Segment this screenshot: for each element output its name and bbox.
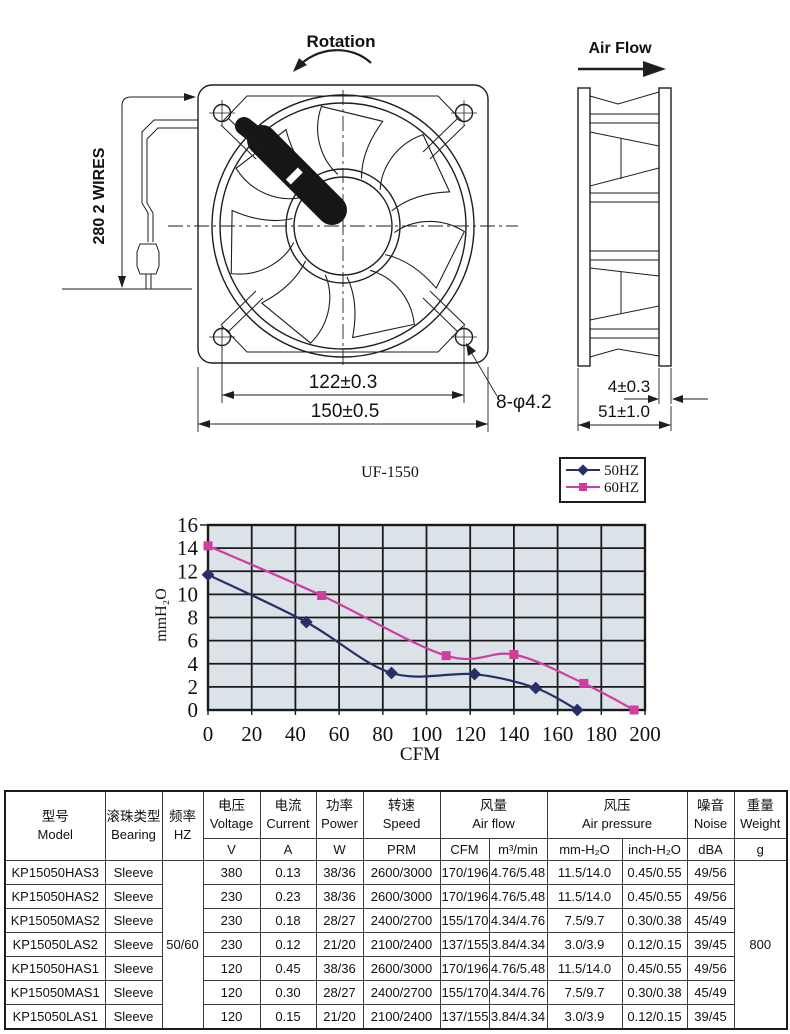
technical-drawing: Rotation Air Flow 280 2 WIRES 122±0.3 15… bbox=[0, 0, 790, 505]
cell-current: 0.45 bbox=[260, 957, 316, 981]
unit-noise: dBA bbox=[687, 839, 734, 861]
dim-holes-label: 8-φ4.2 bbox=[496, 392, 552, 413]
cell-airflow-m3: 3.84/4.34 bbox=[489, 1005, 547, 1030]
cell-speed: 2400/2700 bbox=[363, 981, 440, 1005]
cell-voltage: 380 bbox=[203, 861, 260, 885]
cell-speed: 2100/2400 bbox=[363, 933, 440, 957]
dim-thickness-label: 4±0.3 bbox=[608, 377, 650, 396]
cell-airflow-cfm: 170/196 bbox=[440, 957, 489, 981]
cell-bearing: Sleeve bbox=[105, 909, 162, 933]
dim-frame-label: 150±0.5 bbox=[311, 401, 380, 422]
performance-chart: 0204060801001201401601802000246810121416… bbox=[0, 505, 790, 790]
fan-blade bbox=[381, 206, 465, 290]
series-marker-60HZ bbox=[630, 706, 639, 715]
cell-noise: 45/49 bbox=[687, 909, 734, 933]
cell-airflow-m3: 4.34/4.76 bbox=[489, 909, 547, 933]
header-model-en: Model bbox=[7, 826, 104, 844]
cell-power: 21/20 bbox=[316, 1005, 363, 1030]
header-weight-en: Weight bbox=[736, 815, 786, 833]
unit-weight: g bbox=[734, 839, 787, 861]
cell-airflow-m3: 3.84/4.34 bbox=[489, 933, 547, 957]
y-tick-label: 0 bbox=[188, 698, 199, 722]
cell-current: 0.15 bbox=[260, 1005, 316, 1030]
cell-model: KP15050MAS2 bbox=[5, 909, 105, 933]
cell-noise: 49/56 bbox=[687, 957, 734, 981]
y-tick-label: 12 bbox=[177, 559, 198, 583]
x-tick-label: 180 bbox=[586, 722, 618, 746]
header-noise: 噪音 Noise bbox=[687, 791, 734, 839]
fan-blade bbox=[366, 134, 453, 221]
header-pressure-en: Air pressure bbox=[549, 815, 686, 833]
cell-pressure-inch: 0.45/0.55 bbox=[622, 957, 687, 981]
cell-noise: 49/56 bbox=[687, 885, 734, 909]
cell-bearing: Sleeve bbox=[105, 933, 162, 957]
header-voltage: 电压 Voltage bbox=[203, 791, 260, 839]
y-tick-label: 8 bbox=[188, 606, 199, 630]
cell-airflow-cfm: 137/155 bbox=[440, 933, 489, 957]
cell-current: 0.12 bbox=[260, 933, 316, 957]
spec-row: KP15050HAS2Sleeve2300.2338/362600/300017… bbox=[5, 885, 787, 909]
header-voltage-zh: 电压 bbox=[205, 797, 259, 815]
spec-row: KP15050LAS2Sleeve2300.1221/202100/240013… bbox=[5, 933, 787, 957]
cell-pressure-mm: 11.5/14.0 bbox=[547, 861, 622, 885]
header-airflow-en: Air flow bbox=[442, 815, 546, 833]
unit-voltage: V bbox=[203, 839, 260, 861]
cell-airflow-cfm: 155/170 bbox=[440, 981, 489, 1005]
cell-voltage: 120 bbox=[203, 957, 260, 981]
cell-pressure-mm: 7.5/9.7 bbox=[547, 909, 622, 933]
header-noise-zh: 噪音 bbox=[689, 797, 733, 815]
y-tick-label: 2 bbox=[188, 675, 199, 699]
legend-label-60hz: 60HZ bbox=[604, 480, 639, 496]
cell-power: 38/36 bbox=[316, 957, 363, 981]
cell-current: 0.23 bbox=[260, 885, 316, 909]
header-bearing-en: Bearing bbox=[107, 826, 161, 844]
series-marker-60HZ bbox=[579, 679, 588, 688]
cell-airflow-cfm: 155/170 bbox=[440, 909, 489, 933]
cell-bearing: Sleeve bbox=[105, 861, 162, 885]
cell-pressure-inch: 0.12/0.15 bbox=[622, 933, 687, 957]
cell-power: 21/20 bbox=[316, 933, 363, 957]
spec-row: KP15050MAS2Sleeve2300.1828/272400/270015… bbox=[5, 909, 787, 933]
header-weight-zh: 重量 bbox=[736, 797, 786, 815]
cell-power: 38/36 bbox=[316, 885, 363, 909]
cell-pressure-inch: 0.45/0.55 bbox=[622, 861, 687, 885]
header-power: 功率 Power bbox=[316, 791, 363, 839]
cell-speed: 2600/3000 bbox=[363, 861, 440, 885]
airflow-label: Air Flow bbox=[588, 40, 652, 57]
header-pressure-zh: 风压 bbox=[549, 797, 686, 815]
header-bearing-zh: 滚珠类型 bbox=[107, 808, 161, 826]
unit-speed: PRM bbox=[363, 839, 440, 861]
cell-airflow-m3: 4.76/5.48 bbox=[489, 957, 547, 981]
header-power-en: Power bbox=[318, 815, 362, 833]
fan-datasheet-page: Rotation Air Flow 280 2 WIRES 122±0.3 15… bbox=[0, 0, 790, 1034]
cell-pressure-inch: 0.45/0.55 bbox=[622, 885, 687, 909]
cell-model: KP15050LAS1 bbox=[5, 1005, 105, 1030]
cell-current: 0.30 bbox=[260, 981, 316, 1005]
y-tick-label: 16 bbox=[177, 513, 198, 537]
x-tick-label: 140 bbox=[498, 722, 530, 746]
series-marker-60HZ bbox=[509, 650, 518, 659]
cell-current: 0.13 bbox=[260, 861, 316, 885]
cell-bearing: Sleeve bbox=[105, 885, 162, 909]
cell-power: 38/36 bbox=[316, 861, 363, 885]
unit-current: A bbox=[260, 839, 316, 861]
cell-bearing: Sleeve bbox=[105, 1005, 162, 1030]
unit-airflow-m3: m³/min bbox=[489, 839, 547, 861]
airflow-arrow-icon bbox=[578, 61, 666, 77]
header-frequency-en: HZ bbox=[164, 826, 202, 844]
series-marker-60HZ bbox=[442, 651, 451, 660]
header-bearing: 滚珠类型 Bearing bbox=[105, 791, 162, 861]
x-tick-label: 120 bbox=[454, 722, 486, 746]
cell-power: 28/27 bbox=[316, 981, 363, 1005]
cell-speed: 2600/3000 bbox=[363, 957, 440, 981]
cell-airflow-cfm: 170/196 bbox=[440, 885, 489, 909]
series-marker-60HZ bbox=[317, 591, 326, 600]
x-tick-label: 80 bbox=[372, 722, 393, 746]
header-model-zh: 型号 bbox=[7, 808, 104, 826]
header-speed-en: Speed bbox=[365, 815, 439, 833]
y-axis-label: mmH₂O bbox=[153, 588, 170, 642]
cell-speed: 2600/3000 bbox=[363, 885, 440, 909]
cell-weight: 800 bbox=[734, 861, 787, 1030]
spec-row: KP15050HAS1Sleeve1200.4538/362600/300017… bbox=[5, 957, 787, 981]
unit-pressure-inch: inch-H₂O bbox=[622, 839, 687, 861]
spec-row: KP15050MAS1Sleeve1200.3028/272400/270015… bbox=[5, 981, 787, 1005]
header-frequency-zh: 频率 bbox=[164, 808, 202, 826]
spec-row: KP15050HAS3Sleeve50/603800.1338/362600/3… bbox=[5, 861, 787, 885]
header-current: 电流 Current bbox=[260, 791, 316, 839]
cell-pressure-mm: 3.0/3.9 bbox=[547, 1005, 622, 1030]
unit-pressure-mm: mm-H₂O bbox=[547, 839, 622, 861]
cell-model: KP15050HAS1 bbox=[5, 957, 105, 981]
cell-noise: 45/49 bbox=[687, 981, 734, 1005]
cell-voltage: 120 bbox=[203, 1005, 260, 1030]
rotation-arrow-icon bbox=[293, 50, 371, 72]
header-weight: 重量 Weight bbox=[734, 791, 787, 839]
x-tick-label: 100 bbox=[411, 722, 443, 746]
header-speed-zh: 转速 bbox=[365, 797, 439, 815]
x-tick-label: 160 bbox=[542, 722, 574, 746]
cell-bearing: Sleeve bbox=[105, 957, 162, 981]
lead-wires bbox=[62, 93, 198, 289]
cell-model: KP15050HAS3 bbox=[5, 861, 105, 885]
header-current-zh: 电流 bbox=[262, 797, 315, 815]
cell-pressure-inch: 0.30/0.38 bbox=[622, 909, 687, 933]
x-tick-label: 200 bbox=[629, 722, 661, 746]
cell-voltage: 120 bbox=[203, 981, 260, 1005]
cell-airflow-m3: 4.76/5.48 bbox=[489, 885, 547, 909]
cell-bearing: Sleeve bbox=[105, 981, 162, 1005]
cell-pressure-mm: 7.5/9.7 bbox=[547, 981, 622, 1005]
x-tick-label: 0 bbox=[203, 722, 214, 746]
y-tick-label: 10 bbox=[177, 582, 198, 606]
header-frequency: 频率 HZ bbox=[162, 791, 203, 861]
cell-speed: 2100/2400 bbox=[363, 1005, 440, 1030]
fan-side-view bbox=[578, 88, 671, 366]
rotation-label: Rotation bbox=[307, 32, 376, 51]
cell-model: KP15050LAS2 bbox=[5, 933, 105, 957]
header-current-en: Current bbox=[262, 815, 315, 833]
fan-front-view bbox=[62, 50, 708, 502]
spec-row: KP15050LAS1Sleeve1200.1521/202100/240013… bbox=[5, 1005, 787, 1030]
header-noise-en: Noise bbox=[689, 815, 733, 833]
cell-noise: 39/45 bbox=[687, 933, 734, 957]
header-airflow: 风量 Air flow bbox=[440, 791, 547, 839]
series-marker-60HZ bbox=[204, 541, 213, 550]
y-tick-label: 4 bbox=[188, 652, 199, 676]
header-airflow-zh: 风量 bbox=[442, 797, 546, 815]
legend-label-50hz: 50HZ bbox=[604, 463, 639, 479]
model-number-label: UF-1550 bbox=[361, 464, 419, 481]
wires-label: 280 2 WIRES bbox=[91, 147, 108, 244]
unit-power: W bbox=[316, 839, 363, 861]
y-tick-label: 14 bbox=[177, 536, 199, 560]
dim-hole-pitch-label: 122±0.3 bbox=[309, 372, 378, 393]
cell-airflow-m3: 4.34/4.76 bbox=[489, 981, 547, 1005]
cell-pressure-mm: 11.5/14.0 bbox=[547, 885, 622, 909]
x-tick-label: 40 bbox=[285, 722, 306, 746]
cell-model: KP15050MAS1 bbox=[5, 981, 105, 1005]
cell-pressure-inch: 0.12/0.15 bbox=[622, 1005, 687, 1030]
cell-model: KP15050HAS2 bbox=[5, 885, 105, 909]
spec-table: 型号 Model 滚珠类型 Bearing 频率 HZ 电压 Voltage 电… bbox=[4, 790, 788, 1030]
header-power-zh: 功率 bbox=[318, 797, 362, 815]
cell-voltage: 230 bbox=[203, 909, 260, 933]
cell-power: 28/27 bbox=[316, 909, 363, 933]
dim-depth-label: 51±1.0 bbox=[598, 402, 650, 421]
x-tick-label: 60 bbox=[329, 722, 350, 746]
cell-pressure-inch: 0.30/0.38 bbox=[622, 981, 687, 1005]
cell-noise: 39/45 bbox=[687, 1005, 734, 1030]
fan-blade bbox=[228, 208, 295, 275]
unit-airflow-cfm: CFM bbox=[440, 839, 489, 861]
cell-airflow-cfm: 137/155 bbox=[440, 1005, 489, 1030]
x-tick-label: 20 bbox=[241, 722, 262, 746]
header-speed: 转速 Speed bbox=[363, 791, 440, 839]
cell-voltage: 230 bbox=[203, 933, 260, 957]
header-model: 型号 Model bbox=[5, 791, 105, 861]
cell-current: 0.18 bbox=[260, 909, 316, 933]
cell-noise: 49/56 bbox=[687, 861, 734, 885]
cell-airflow-m3: 4.76/5.48 bbox=[489, 861, 547, 885]
cell-frequency: 50/60 bbox=[162, 861, 203, 1030]
x-axis-label: CFM bbox=[400, 744, 440, 765]
y-tick-label: 6 bbox=[188, 629, 199, 653]
cell-voltage: 230 bbox=[203, 885, 260, 909]
cell-airflow-cfm: 170/196 bbox=[440, 861, 489, 885]
header-voltage-en: Voltage bbox=[205, 815, 259, 833]
cell-pressure-mm: 3.0/3.9 bbox=[547, 933, 622, 957]
header-pressure: 风压 Air pressure bbox=[547, 791, 687, 839]
cell-pressure-mm: 11.5/14.0 bbox=[547, 957, 622, 981]
cell-speed: 2400/2700 bbox=[363, 909, 440, 933]
